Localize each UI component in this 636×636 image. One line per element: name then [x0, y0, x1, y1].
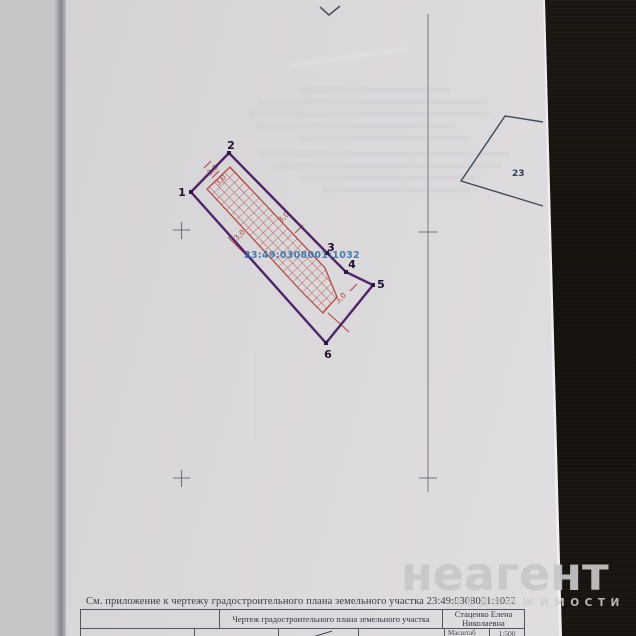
grid-cross-icon [173, 222, 190, 239]
title-block-empty-cell [81, 610, 219, 628]
watermark-logo: неагент [401, 551, 609, 597]
author-name-line2: Николаевна [462, 619, 505, 628]
title-block-row-1: Чертеж градостроительного плана земельно… [80, 609, 525, 629]
watermark-tagline: НЕДВИЖИМОСТИ [452, 597, 625, 609]
neighbor-parcel-label: 23 [512, 169, 525, 179]
neighbor-parcel-outline: 23 [461, 116, 543, 206]
north-chevron-icon [320, 6, 340, 15]
scale-label-cell: Масштаб [444, 629, 489, 636]
vertex-label: 2 [227, 139, 235, 152]
parcel-cadastral-number: 23:49:0308001:1032 [244, 250, 360, 261]
title-block-cell [358, 629, 444, 636]
vertex-label: 5 [377, 278, 385, 291]
author-cell: Стаценко Елена Николаевна [443, 610, 524, 628]
drawing-title-cell: Чертеж градостроительного плана земельно… [219, 610, 443, 628]
vertex-label: 6 [324, 348, 332, 361]
vertex-label: 1 [178, 186, 186, 199]
cadastral-drawing: 23 3,0 3,0 3,0 3,0 3,0 [0, 0, 636, 636]
signature-cell [278, 629, 358, 636]
title-block-row-2: Масштаб 1:500 [80, 629, 525, 636]
grid-cross-icon [173, 470, 190, 487]
title-block-cell [194, 629, 278, 636]
title-block-cell [81, 629, 194, 636]
scale-value-cell: 1:500 [489, 629, 524, 636]
